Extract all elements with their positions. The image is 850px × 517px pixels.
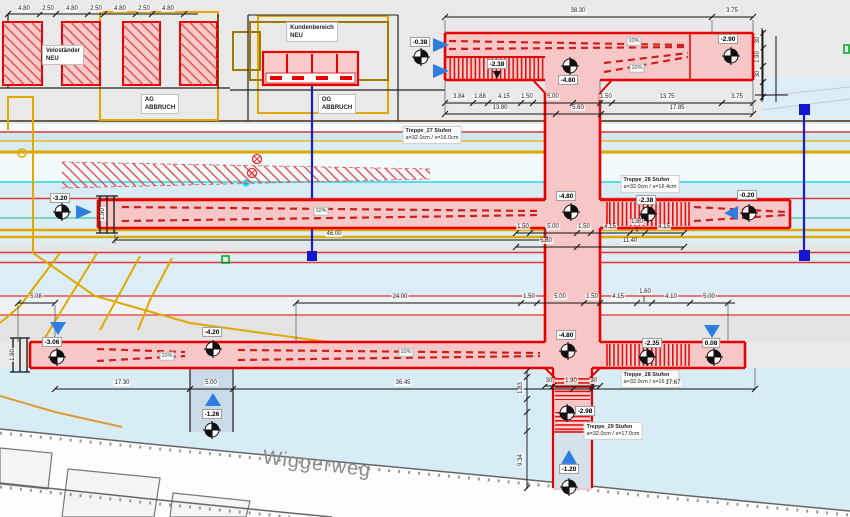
dim-label: 2.50 bbox=[137, 6, 151, 12]
dim-label: 1.90 bbox=[755, 50, 761, 64]
level-value: -0.38 bbox=[410, 37, 430, 47]
dim-label: 36.45 bbox=[394, 380, 411, 386]
dim-label: 3.84 bbox=[452, 94, 466, 100]
area-label-kundenbereich: Kundenbereich NEU bbox=[286, 22, 338, 42]
level-value: -3.06 bbox=[42, 337, 62, 347]
dim-label: 17.30 bbox=[113, 380, 130, 386]
area-label-og-abbruch: OG ABBRUCH bbox=[318, 94, 356, 114]
dim-label: 24.00 bbox=[391, 294, 408, 300]
dim-label: 5.08 bbox=[29, 294, 43, 300]
slope-label: 10% bbox=[313, 207, 328, 216]
level-value: -2.38 bbox=[636, 195, 656, 205]
level-value: 0.08 bbox=[702, 338, 720, 348]
stair-note-spec: a=32.0cm / s=17.0cm bbox=[587, 431, 640, 438]
building-outline bbox=[62, 469, 160, 517]
level-value: -2.90 bbox=[718, 34, 738, 44]
level-value: -1.20 bbox=[559, 464, 579, 474]
dim-label: 5.00 bbox=[702, 294, 716, 300]
stair-note-name: Treppe_27 Stufen bbox=[406, 128, 459, 135]
level-value: -2.35 bbox=[642, 338, 662, 348]
level-value: -2.98 bbox=[575, 406, 595, 416]
dim-label: 1.90 bbox=[564, 378, 578, 384]
level-value: -3.20 bbox=[50, 193, 70, 203]
dim-label: 13.75 bbox=[658, 94, 675, 100]
dim-label: 5.00 bbox=[546, 94, 560, 100]
dim-label: 5.00 bbox=[553, 294, 567, 300]
dim-label: 2.50 bbox=[41, 6, 55, 12]
dim-label: 4.15 bbox=[497, 94, 511, 100]
dim-label: 4.15 bbox=[657, 224, 671, 230]
dim-label: 4.80 bbox=[65, 6, 79, 12]
dim-label: 30 bbox=[755, 36, 761, 45]
dim-label: 30 bbox=[590, 378, 599, 384]
dim-label: 1.90 bbox=[10, 348, 16, 362]
level-value: -1.26 bbox=[202, 409, 222, 419]
dim-label: 17.67 bbox=[664, 380, 681, 386]
dim-label: 1.50 bbox=[516, 224, 530, 230]
level-value: -0.20 bbox=[737, 190, 757, 200]
slope-label: 10% bbox=[398, 348, 413, 357]
level-value: -4.20 bbox=[202, 327, 222, 337]
dim-label: 4.15 bbox=[611, 294, 625, 300]
stair-note-name: Treppe_28 Stufen bbox=[624, 177, 677, 184]
site-plan: Veloständer NEU AG ABBRUCH Kundenbereich… bbox=[0, 0, 850, 517]
stair-note-spec: a=32.0cm / s=16.4cm bbox=[624, 184, 677, 191]
area-label-velostaender: Veloständer NEU bbox=[42, 45, 84, 65]
dim-label: 1.50 bbox=[599, 94, 613, 100]
level-value: -4.80 bbox=[556, 330, 576, 340]
dim-label: 3.75 bbox=[725, 8, 739, 14]
level-value: -4.80 bbox=[556, 191, 576, 201]
stair-note: Treppe_29 Stufen a=32.0cm / s=17.0cm bbox=[584, 422, 643, 440]
stair-note: Treppe_27 Stufen a=32.0cm / s=16.0cm bbox=[403, 126, 462, 144]
slope-label: 10% bbox=[159, 352, 174, 361]
dim-label: 1.50 bbox=[522, 294, 536, 300]
slope-label: 10% bbox=[626, 37, 641, 46]
area-label-ag-abbruch: AG ABBRUCH bbox=[141, 94, 179, 114]
dim-label: 3.75 bbox=[730, 94, 744, 100]
dim-label: 1.50 bbox=[520, 94, 534, 100]
plan-canvas bbox=[0, 0, 850, 517]
dim-label: 1.88 bbox=[473, 94, 487, 100]
blue-node-square bbox=[307, 251, 317, 261]
stair-note: Treppe_28 Stufen a=32.0cm / s=16.4cm bbox=[621, 175, 680, 193]
dim-label: 5.60 bbox=[571, 105, 585, 111]
dim-label: 4.80 bbox=[113, 6, 127, 12]
blue-node-square bbox=[799, 104, 810, 115]
blue-node-square bbox=[799, 250, 810, 261]
dim-label: 2.50 bbox=[89, 6, 103, 12]
dim-label: 1.60 bbox=[630, 219, 644, 225]
building-outline bbox=[0, 448, 52, 489]
level-value: -2.38 bbox=[487, 59, 507, 69]
dim-label: 13.80 bbox=[491, 105, 508, 111]
dim-label: 1.60 bbox=[638, 289, 652, 295]
dim-label: 5.00 bbox=[204, 380, 218, 386]
dim-label: 5.60 bbox=[539, 238, 553, 244]
dim-label: 1.50 bbox=[577, 224, 591, 230]
stair-note-name: Treppe_28 Stufen bbox=[624, 372, 677, 379]
dim-label: 4.80 bbox=[161, 6, 175, 12]
dim-label: 4.80 bbox=[17, 6, 31, 12]
dim-label: 4.10 bbox=[664, 294, 678, 300]
dim-label: 11.40 bbox=[622, 238, 639, 244]
dim-label: 1.90 bbox=[100, 207, 106, 221]
dim-label: 1.50 bbox=[585, 294, 599, 300]
dim-label: 9.34 bbox=[518, 453, 524, 467]
dim-label: 1.83 bbox=[518, 381, 524, 395]
dim-label: 17.85 bbox=[668, 105, 685, 111]
level-value: -4.80 bbox=[558, 75, 578, 85]
dim-label: 46.00 bbox=[325, 231, 342, 237]
slope-label: 10% bbox=[629, 64, 644, 73]
dim-label: 30 bbox=[755, 70, 761, 79]
dim-label: 4.15 bbox=[603, 224, 617, 230]
dim-label: 5.00 bbox=[546, 224, 560, 230]
dim-label: 38.30 bbox=[569, 8, 586, 14]
stair-note-name: Treppe_29 Stufen bbox=[587, 424, 640, 431]
dim-label: 30 bbox=[545, 378, 554, 384]
stair-note-spec: a=32.0cm / s=16.0cm bbox=[406, 135, 459, 142]
